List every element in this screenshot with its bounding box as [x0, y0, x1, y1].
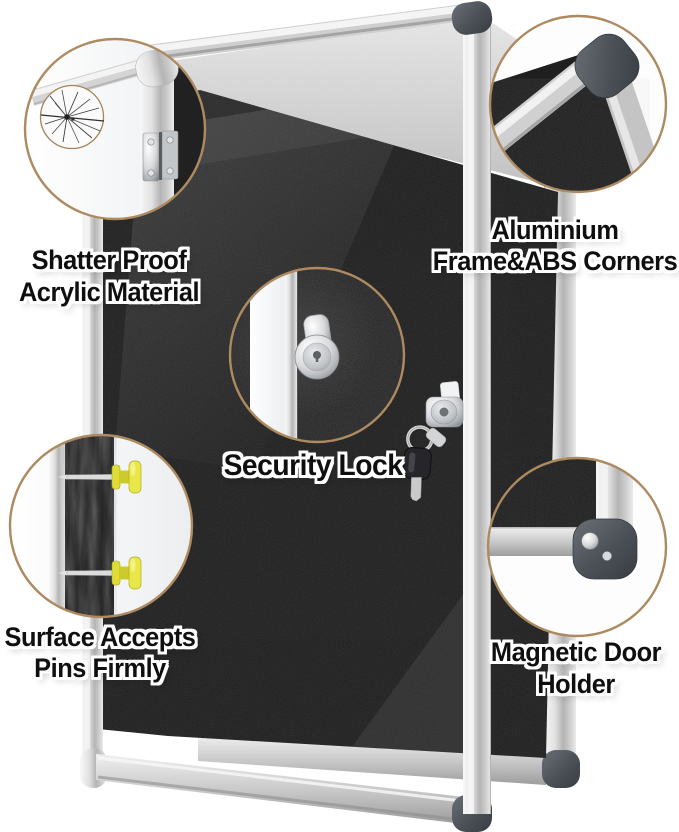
label-line: Holder [491, 668, 661, 700]
label-line: Magnetic Door [491, 636, 661, 668]
door-holder-magnet [582, 533, 599, 550]
pin-needle [67, 474, 113, 479]
label-shatter-proof-acrylic: Shatter Proof Acrylic Material [19, 244, 199, 308]
notice-board-illustration [0, 0, 679, 832]
label-line: Aluminium [433, 215, 677, 246]
abs-corner-with-magnet [573, 519, 637, 579]
label-line: Frame&ABS Corners [433, 246, 677, 277]
callout4-frame-strip [49, 433, 65, 621]
label-magnetic-door-holder: Magnetic Door Holder [491, 636, 661, 700]
label-surface-accepts-pins: Surface Accepts Pins Firmly [5, 622, 196, 684]
black-key-head [402, 447, 432, 480]
label-line: Shatter Proof [19, 244, 199, 276]
pin-waist [119, 471, 130, 484]
label-line: Acrylic Material [19, 276, 199, 308]
label-line: Pins Firmly [5, 653, 196, 684]
hinge-screw [167, 137, 173, 143]
label-aluminium-frame-abs-corners: Aluminium Frame&ABS Corners [433, 215, 677, 277]
pin-waist [119, 567, 130, 580]
callout4-felt-streaks [65, 433, 114, 621]
label-line: Surface Accepts [5, 622, 196, 653]
black-key-blade [409, 476, 422, 501]
label-security-lock: Security Lock [224, 450, 403, 482]
product-feature-image: Shatter Proof Acrylic Material Aluminium… [0, 0, 679, 832]
door-right-rail-highlight [468, 14, 474, 814]
door-right-rail [463, 14, 491, 814]
pin-highlight [131, 462, 136, 476]
pin-needle [67, 570, 113, 575]
hinge-screw [148, 170, 154, 176]
case-bottom-right-abs-corner [542, 750, 580, 788]
crack-detail [41, 86, 105, 149]
pin-inner-flange [112, 561, 120, 585]
hinge-slot [159, 132, 162, 180]
pin-highlight [131, 558, 136, 572]
hinge-screw [148, 139, 154, 145]
hinge [143, 131, 178, 181]
cam-lock-key-slot [316, 352, 319, 362]
pin-inner-flange [112, 465, 120, 489]
label-line: Security Lock [224, 450, 403, 482]
corner-screw-hole [602, 551, 612, 561]
hinge-screw [167, 168, 173, 174]
lock-keyhole [440, 408, 449, 417]
